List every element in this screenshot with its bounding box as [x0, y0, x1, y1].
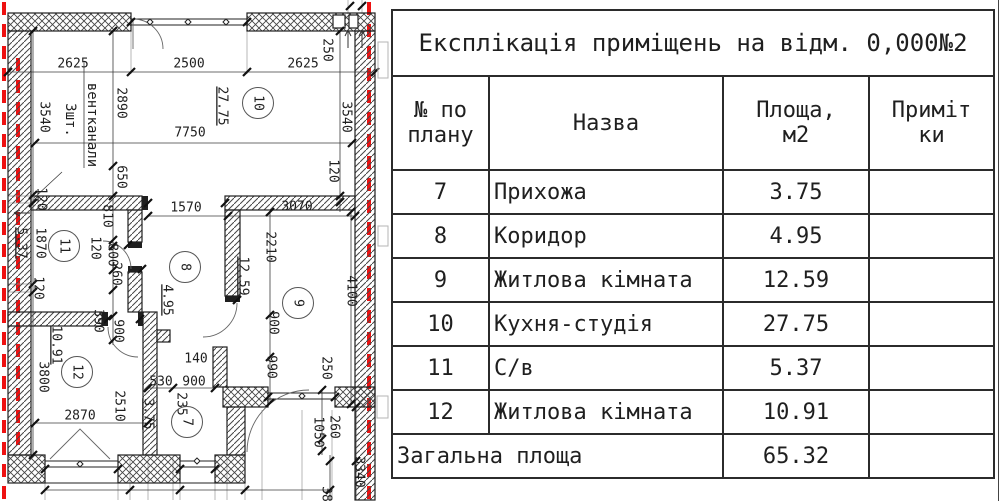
dim-label: 120 — [34, 187, 49, 210]
cell-name: Коридор — [489, 214, 723, 258]
room-number: 11 — [57, 238, 72, 254]
page: { "title": "Експлікація приміщень на від… — [0, 0, 1000, 501]
explication-table: Експлікація приміщень на відм. 0,000№2 №… — [391, 9, 995, 479]
table-row: 8Коридор4.95 — [392, 214, 994, 258]
cell-num: 8 — [392, 214, 489, 258]
dim-label: 260 — [109, 262, 124, 285]
cell-num: 11 — [392, 346, 489, 390]
dim-label: 3800 — [36, 361, 51, 392]
neighbor-outlines — [377, 42, 388, 418]
cell-area: 4.95 — [723, 214, 869, 258]
room-number: 9 — [291, 299, 306, 307]
room-circle: 10 — [243, 88, 274, 119]
dim-label: 530 — [149, 375, 172, 390]
cell-area: 12.59 — [723, 258, 869, 302]
cell-area: 27.75 — [723, 302, 869, 346]
dim-label: 7750 — [174, 126, 205, 141]
dim-label: 4100 — [344, 275, 359, 306]
table-row: 7Прихожа3.75 — [392, 170, 994, 214]
table-row: 10Кухня-студія27.75 — [392, 302, 994, 346]
cell-note — [869, 346, 994, 390]
dim-label: 390 — [91, 309, 106, 332]
cell-num: 12 — [392, 390, 489, 434]
total-area: 65.32 — [723, 434, 869, 478]
dim-label: 5.37 — [14, 227, 29, 258]
col-header-name: Назва — [489, 76, 723, 170]
dim-label: 990 — [264, 355, 279, 378]
total-note — [869, 434, 994, 478]
cell-area: 3.75 — [723, 170, 869, 214]
dim-label: 900 — [266, 311, 281, 334]
dim-label: 27.75 — [215, 86, 230, 125]
dim-label: 1050 — [311, 416, 326, 447]
dim-label: 260 — [327, 415, 342, 438]
dim-label: 3540 — [37, 101, 52, 132]
total-label: Загальна площа — [392, 434, 723, 478]
room-number: 7 — [180, 418, 195, 426]
dim-label: 120 — [88, 236, 103, 259]
table-row: 11С/в5.37 — [392, 346, 994, 390]
table-title: Експлікація приміщень на відм. 0,000№2 — [392, 10, 994, 76]
dim-label: 2890 — [114, 87, 129, 118]
total-row: Загальна площа 65.32 — [392, 434, 994, 478]
room-number: 12 — [70, 364, 85, 380]
cell-num: 7 — [392, 170, 489, 214]
col-header-num: № по плану — [392, 76, 489, 170]
dim-label: 1870 — [33, 227, 48, 258]
dim-label: 4.95 — [160, 284, 175, 315]
dim-label: 2870 — [64, 409, 95, 424]
cell-area: 10.91 — [723, 390, 869, 434]
dim-label: 650 — [114, 165, 129, 188]
room-circle: 11 — [49, 231, 80, 262]
table-body: 7Прихожа3.758Коридор4.959Житлова кімната… — [392, 170, 994, 434]
dim-label: 250 — [319, 356, 334, 379]
dim-label: 3340 — [352, 456, 367, 487]
dim-label: 38 — [319, 486, 334, 501]
dim-label: 10.91 — [49, 325, 64, 364]
cell-name: Прихожа — [489, 170, 723, 214]
dim-label: 3070 — [281, 200, 312, 215]
dim-label: 235 — [174, 392, 189, 415]
dim-label: 2625 — [287, 57, 318, 72]
cell-note — [869, 258, 994, 302]
cell-name: Житлова кімната — [489, 390, 723, 434]
cell-name: С/в — [489, 346, 723, 390]
dim-label: вентканали — [84, 83, 100, 167]
dim-label: 1570 — [170, 201, 201, 216]
room-circle: 9 — [283, 288, 314, 319]
title-row: Експлікація приміщень на відм. 0,000№2 — [392, 10, 994, 76]
dim-label: 3шт. — [62, 103, 78, 137]
floor-plan: 26252500262525028903540вентканали3шт.27.… — [0, 0, 390, 501]
col-header-area: Площа, м2 — [723, 76, 869, 170]
cell-num: 9 — [392, 258, 489, 302]
dim-label: 2210 — [263, 231, 278, 262]
header-row: № по плану Назва Площа, м2 Приміт ки — [392, 76, 994, 170]
table-row: 12Житлова кімната10.91 — [392, 390, 994, 434]
dim-label: 900 — [111, 319, 126, 342]
dim-label: 2625 — [57, 57, 88, 72]
dim-label: 120 — [31, 276, 46, 299]
dim-label: 140 — [184, 352, 207, 367]
dim-label: 900 — [182, 375, 205, 390]
cell-area: 5.37 — [723, 346, 869, 390]
dim-label: 810 — [100, 204, 115, 227]
col-header-notes: Приміт ки — [869, 76, 994, 170]
cell-num: 10 — [392, 302, 489, 346]
table-row: 9Житлова кімната12.59 — [392, 258, 994, 302]
image-right-edge — [998, 0, 999, 501]
dim-label: 2500 — [173, 57, 204, 72]
room-circle: 8 — [170, 252, 201, 283]
room-number: 8 — [178, 263, 193, 271]
room-number: 10 — [251, 95, 266, 111]
cell-name: Кухня-студія — [489, 302, 723, 346]
dim-label: 3.75 — [141, 398, 156, 429]
cell-name: Житлова кімната — [489, 258, 723, 302]
cell-note — [869, 302, 994, 346]
dim-label: 2510 — [112, 390, 127, 421]
cell-note — [869, 214, 994, 258]
cell-note — [869, 390, 994, 434]
cell-note — [869, 170, 994, 214]
dim-label: 12.59 — [236, 256, 251, 295]
dim-label: 3540 — [339, 101, 354, 132]
dim-label: 250 — [320, 38, 335, 61]
room-circle: 12 — [62, 357, 93, 388]
dim-label: 120 — [326, 159, 341, 182]
